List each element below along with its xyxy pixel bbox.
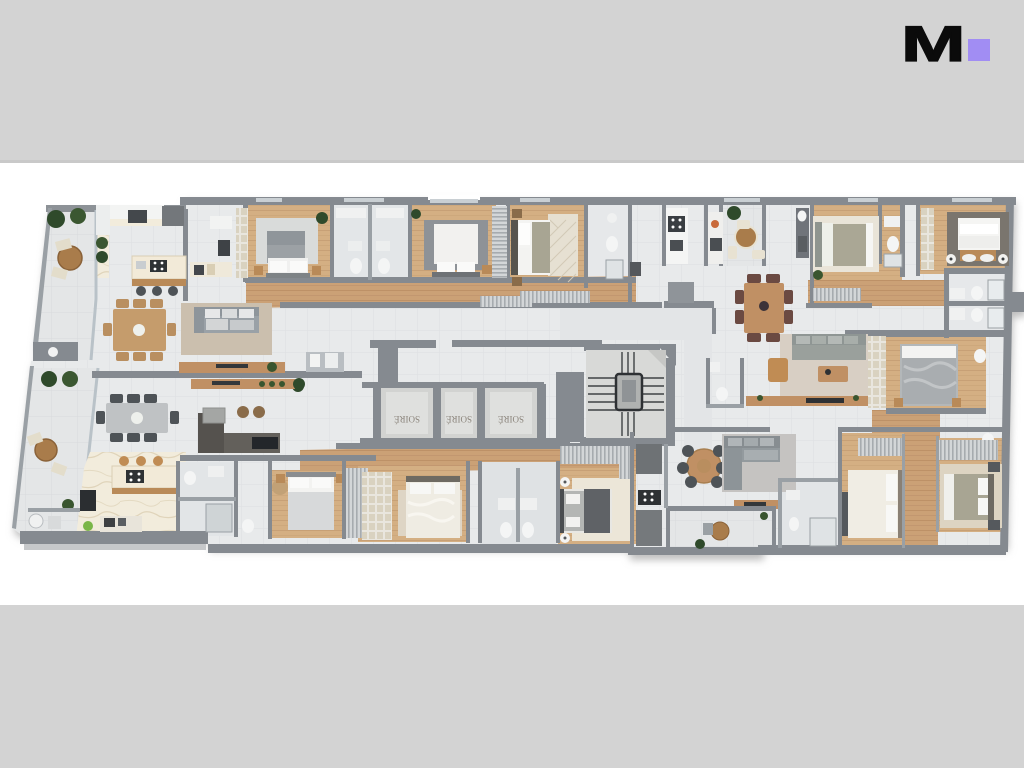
svg-text:SOIRÉ: SOIRÉ [498, 414, 525, 424]
svg-text:SOIRÉ: SOIRÉ [446, 414, 473, 424]
svg-text:M: M [901, 16, 966, 72]
svg-text:SOIRÉ: SOIRÉ [394, 414, 421, 424]
